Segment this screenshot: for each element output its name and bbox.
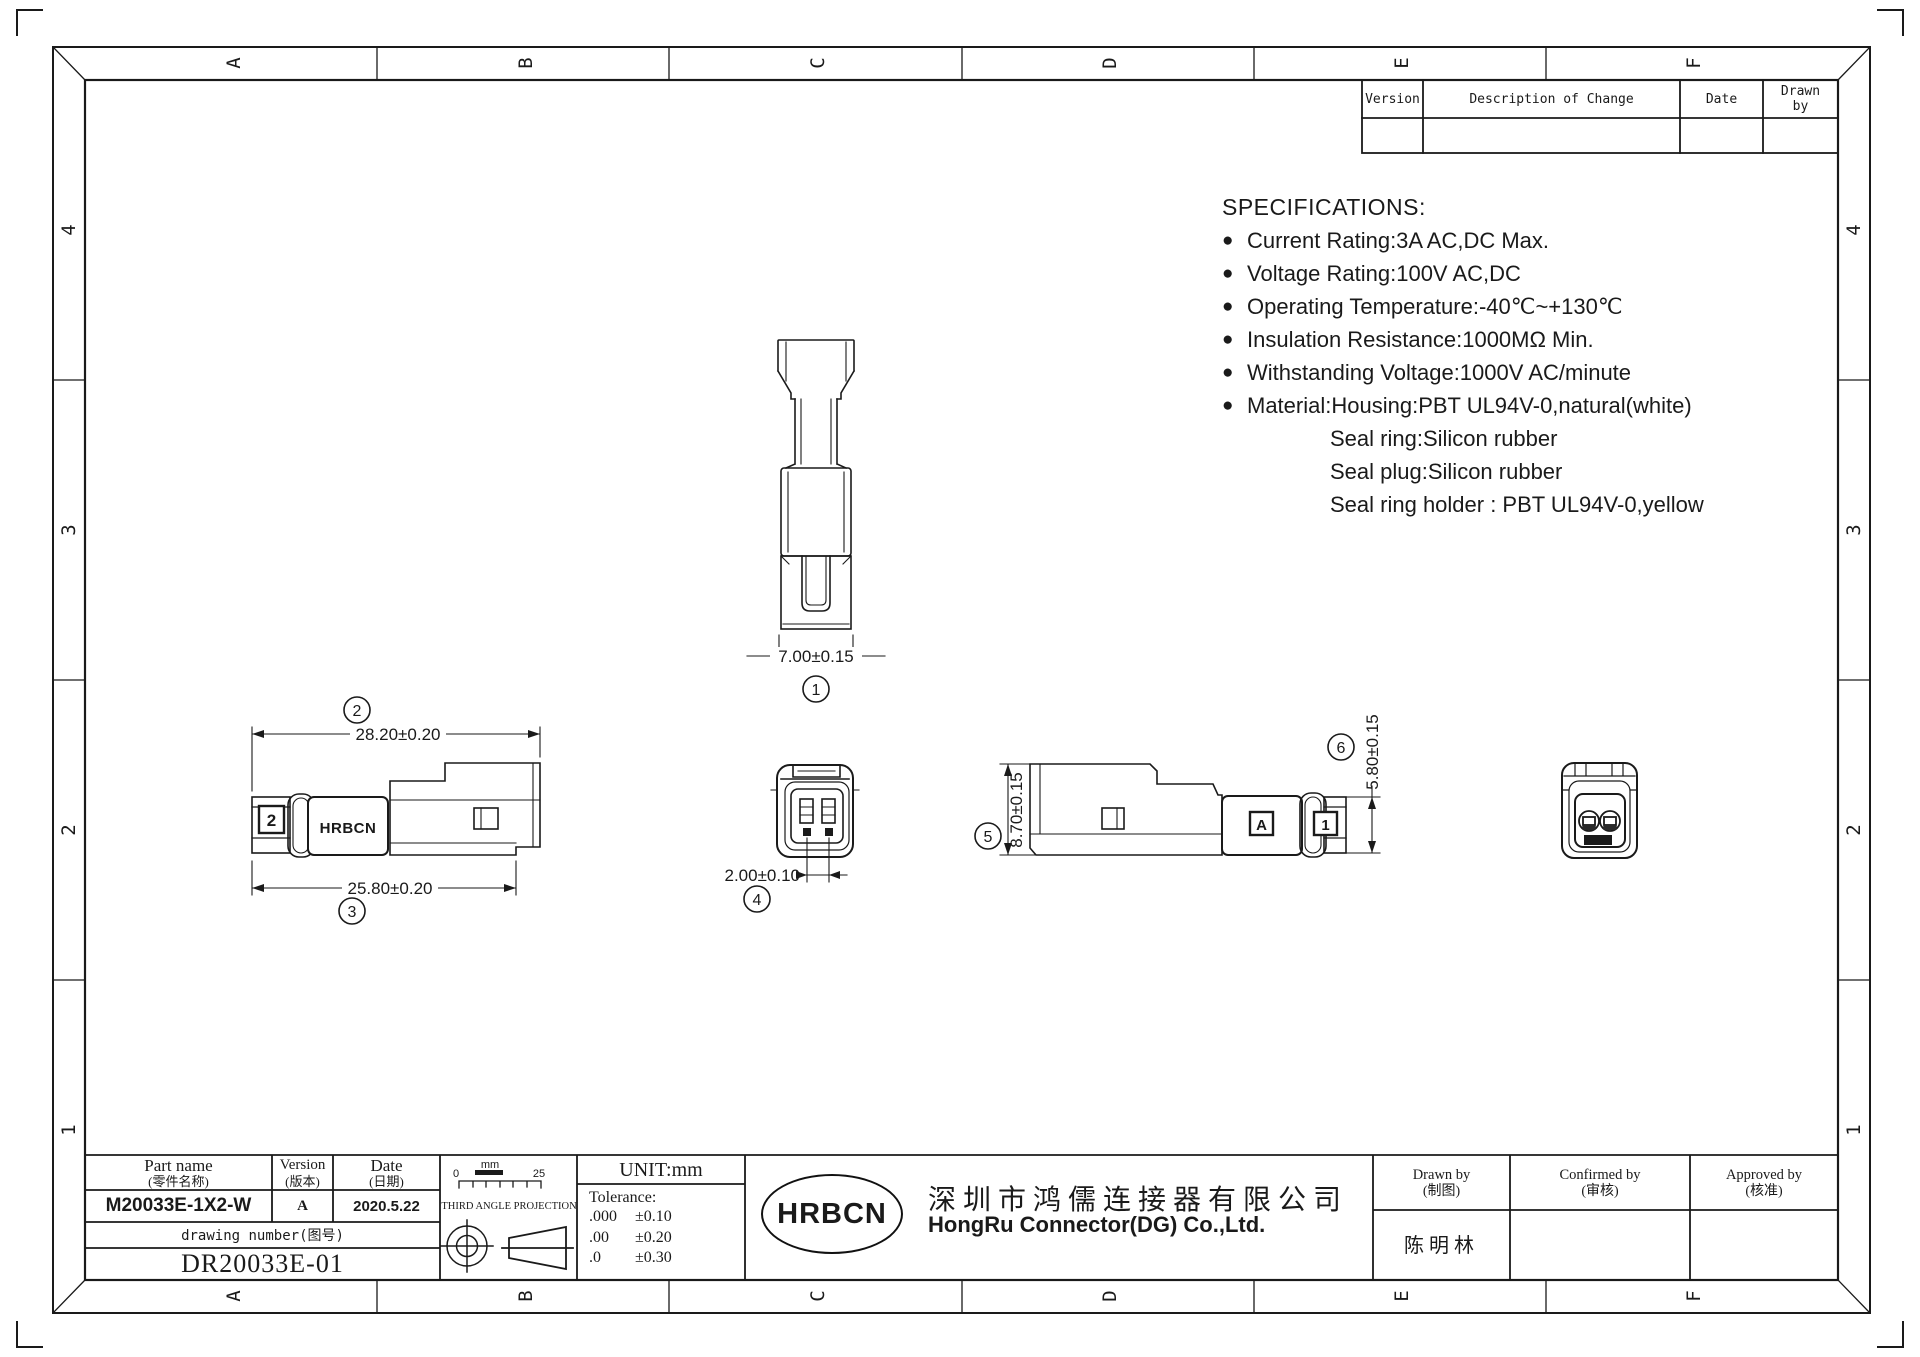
- tolerance-block: Tolerance: .000±0.10 .00±0.20 .0±0.30: [589, 1189, 741, 1269]
- date-label-cn: (日期): [369, 1174, 404, 1189]
- spec-text: Insulation Resistance:1000MΩ Min.: [1247, 323, 1594, 356]
- dim-pitch-2: 2.00±0.10 4: [724, 838, 847, 912]
- front-latch: [781, 765, 849, 779]
- tolerance-row: .0±0.30: [589, 1248, 741, 1269]
- grid-col-label: A: [223, 1290, 245, 1302]
- spec-item: Seal ring holder : PBT UL94V-0,yellow: [1222, 488, 1842, 521]
- spec-text: Withstanding Voltage:1000V AC/minute: [1247, 356, 1631, 389]
- confirmed-by-label: Confirmed by: [1560, 1167, 1641, 1184]
- grid-col-label: D: [1099, 57, 1121, 68]
- specifications-block: SPECIFICATIONS: ●Current Rating:3A AC,DC…: [1222, 190, 1842, 521]
- grid-row-label: 3: [1843, 524, 1865, 535]
- drawing-sheet: A B C D E F A B C D E F 4 3 2 1 4 3 2 1 …: [0, 0, 1920, 1357]
- approved-by-label-cn: (核准): [1745, 1184, 1782, 1199]
- approved-by-header: Approved by (核准): [1690, 1160, 1838, 1206]
- balloon-6: 6: [1337, 740, 1346, 757]
- spec-item: ●Material:Housing:PBT UL94V-0,natural(wh…: [1222, 389, 1842, 422]
- grid-col-label: B: [515, 1290, 537, 1301]
- scale-unit: mm: [481, 1159, 499, 1171]
- bullet-icon: [1305, 422, 1330, 455]
- cavity-1-label: 1: [1321, 817, 1329, 834]
- date-value: 2020.5.22: [333, 1190, 440, 1222]
- specifications-title: SPECIFICATIONS:: [1222, 190, 1842, 224]
- grid-row-label: 1: [58, 1124, 80, 1135]
- spec-item: ●Current Rating:3A AC,DC Max.: [1222, 224, 1842, 257]
- plug-head-inner: [786, 342, 846, 381]
- spec-item: ●Insulation Resistance:1000MΩ Min.: [1222, 323, 1842, 356]
- grid-col-label: F: [1683, 1290, 1705, 1301]
- tolerance-row: .00±0.20: [589, 1228, 741, 1249]
- part-name-label: Part name: [144, 1157, 212, 1174]
- view-rear: [1562, 763, 1637, 858]
- section-a-label: A: [1256, 817, 1267, 834]
- bullet-icon: [1305, 488, 1330, 521]
- terminal-holes: [1579, 811, 1620, 831]
- company-logo: HRBCN: [761, 1174, 903, 1254]
- spec-text: Seal plug:Silicon rubber: [1330, 455, 1562, 488]
- dim-label-cap: 5.80±0.15: [1363, 714, 1382, 790]
- bullet-icon: ●: [1222, 257, 1247, 290]
- grid-row-label: 4: [1843, 224, 1865, 235]
- drawn-by-label: Drawn by: [1413, 1167, 1471, 1184]
- brand-text: HRBCN: [320, 820, 377, 837]
- plug-neck-inner: [801, 399, 831, 464]
- company-name-en: HongRu Connector(DG) Co.,Ltd.: [928, 1212, 1373, 1238]
- grid-col-label: C: [807, 1290, 829, 1301]
- plug-slot-inner: [806, 556, 826, 605]
- view-side-left: 2 HRBCN: [252, 763, 540, 857]
- keying-slot: [1584, 835, 1612, 845]
- balloon-4: 4: [753, 892, 762, 909]
- bullet-icon: ●: [1222, 224, 1247, 257]
- rear-top-details: [1562, 763, 1637, 790]
- scale-start: 0: [453, 1168, 459, 1180]
- plug-lower-body: [781, 556, 851, 629]
- date-header: Date (日期): [333, 1158, 440, 1188]
- grid-col-label: B: [515, 57, 537, 68]
- terminal-slots: [800, 799, 835, 836]
- housing-outline: [1030, 764, 1222, 855]
- part-name-label-cn: (零件名称): [148, 1174, 209, 1189]
- view-front: [771, 765, 859, 857]
- tolerance-digits: .00: [589, 1228, 635, 1249]
- spec-item: ●Withstanding Voltage:1000V AC/minute: [1222, 356, 1842, 389]
- front-side-ticks: [771, 771, 859, 790]
- view-plug-vertical: [778, 340, 854, 629]
- revision-col-description: Description of Change: [1423, 80, 1680, 118]
- balloon-2: 2: [353, 703, 362, 720]
- tolerance-label: Tolerance:: [589, 1189, 741, 1207]
- grid-col-label: A: [223, 57, 245, 69]
- dim-label-length-28: 28.20±0.20: [356, 725, 441, 744]
- dim-label-length-25: 25.80±0.20: [348, 879, 433, 898]
- dim-label-width: 7.00±0.15: [778, 647, 854, 666]
- bullet-icon: ●: [1222, 389, 1247, 422]
- spec-text: Voltage Rating:100V AC,DC: [1247, 257, 1521, 290]
- seal-ring-inner: [293, 798, 309, 853]
- projection-label: THIRD ANGLE PROJECTION: [441, 1198, 577, 1214]
- approved-by-label: Approved by: [1726, 1167, 1802, 1184]
- balloon-1: 1: [812, 682, 821, 699]
- tolerance-digits: .0: [589, 1248, 635, 1269]
- spec-text: Material:Housing:PBT UL94V-0,natural(whi…: [1247, 389, 1692, 422]
- housing-panel-lines: [390, 763, 540, 847]
- approved-by-value: [1690, 1210, 1838, 1276]
- drawn-by-value: 陈明林: [1373, 1210, 1510, 1276]
- dim-label-height: 8.70±0.15: [1007, 772, 1026, 848]
- dim-label-pitch: 2.00±0.10: [724, 866, 800, 885]
- grid-row-label: 1: [1843, 1124, 1865, 1135]
- dim-length-28: 28.20±0.20 2: [252, 697, 540, 791]
- part-name-value: M20033E-1X2-W: [85, 1190, 272, 1222]
- bullet-icon: ●: [1222, 356, 1247, 389]
- version-label-cn: (版本): [285, 1174, 320, 1189]
- scale-bar: 0 mm 25: [453, 1159, 545, 1188]
- tolerance-value: ±0.30: [635, 1248, 672, 1269]
- tolerance-row: .000±0.10: [589, 1207, 741, 1228]
- plug-head-outline: [778, 340, 854, 399]
- confirmed-by-label-cn: (审核): [1581, 1184, 1618, 1199]
- spec-item: Seal plug:Silicon rubber: [1222, 455, 1842, 488]
- revision-col-date: Date: [1680, 80, 1763, 118]
- third-angle-projection-icon: [441, 1220, 573, 1272]
- revision-empty-row: [1362, 118, 1838, 153]
- dim-width-7: 7.00±0.15 1: [747, 635, 885, 702]
- balloon-5: 5: [984, 829, 993, 846]
- drawing-number-value: DR20033E-01: [85, 1248, 440, 1280]
- version-label: Version: [280, 1157, 326, 1174]
- balloon-3: 3: [348, 904, 357, 921]
- spec-text: Operating Temperature:-40℃~+130℃: [1247, 290, 1623, 323]
- version-value: A: [272, 1190, 333, 1222]
- latch-window: [1102, 808, 1124, 829]
- grid-col-label: E: [1391, 57, 1413, 68]
- part-name-header: Part name (零件名称): [85, 1158, 272, 1188]
- revision-col-drawn-by-text: Drawn by: [1777, 84, 1825, 114]
- grid-col-label: D: [1099, 1290, 1121, 1301]
- grid-col-label: E: [1391, 1290, 1413, 1301]
- drawn-by-header: Drawn by (制图): [1373, 1160, 1510, 1206]
- grid-row-label: 3: [58, 524, 80, 535]
- spec-text: Seal ring holder : PBT UL94V-0,yellow: [1330, 488, 1704, 521]
- plug-mid-inner: [788, 472, 844, 552]
- bullet-icon: [1305, 455, 1330, 488]
- confirmed-by-value: [1510, 1210, 1690, 1276]
- version-header: Version (版本): [272, 1158, 333, 1188]
- date-label: Date: [370, 1157, 402, 1174]
- scale-end: 25: [533, 1168, 545, 1180]
- grid-row-label: 2: [58, 824, 80, 835]
- spec-item: Seal ring:Silicon rubber: [1222, 422, 1842, 455]
- dim-height-8-7: 8.70±0.15 5: [975, 764, 1036, 855]
- unit-label: UNIT:mm: [577, 1156, 745, 1184]
- plug-lower-details: [781, 556, 851, 624]
- dim-length-25: 25.80±0.20 3: [252, 861, 516, 924]
- cavity-2-label: 2: [267, 811, 276, 830]
- revision-col-version: Version: [1362, 80, 1423, 118]
- grid-col-label: F: [1683, 57, 1705, 68]
- latch-window: [474, 808, 498, 829]
- bullet-icon: ●: [1222, 290, 1247, 323]
- front-inner: [785, 782, 849, 850]
- grid-row-label: 2: [1843, 824, 1865, 835]
- view-side-right: A 1: [1030, 764, 1346, 857]
- revision-col-drawn-by: Drawn by: [1763, 80, 1838, 118]
- confirmed-by-header: Confirmed by (审核): [1510, 1160, 1690, 1206]
- spec-item: ●Voltage Rating:100V AC,DC: [1222, 257, 1842, 290]
- spec-text: Current Rating:3A AC,DC Max.: [1247, 224, 1549, 257]
- drawn-by-label-cn: (制图): [1423, 1184, 1460, 1199]
- plug-neck: [786, 399, 846, 468]
- housing-outline: [390, 763, 540, 855]
- spec-text: Seal ring:Silicon rubber: [1330, 422, 1557, 455]
- plug-mid-body: [781, 468, 851, 556]
- grid-col-label: C: [807, 57, 829, 68]
- grid-row-label: 4: [58, 224, 80, 235]
- tolerance-value: ±0.20: [635, 1228, 672, 1249]
- spec-item: ●Operating Temperature:-40℃~+130℃: [1222, 290, 1842, 323]
- tolerance-value: ±0.10: [635, 1207, 672, 1228]
- drawing-number-label: drawing number(图号): [85, 1222, 440, 1248]
- housing-panel-line: [1030, 764, 1222, 834]
- tolerance-digits: .000: [589, 1207, 635, 1228]
- bullet-icon: ●: [1222, 323, 1247, 356]
